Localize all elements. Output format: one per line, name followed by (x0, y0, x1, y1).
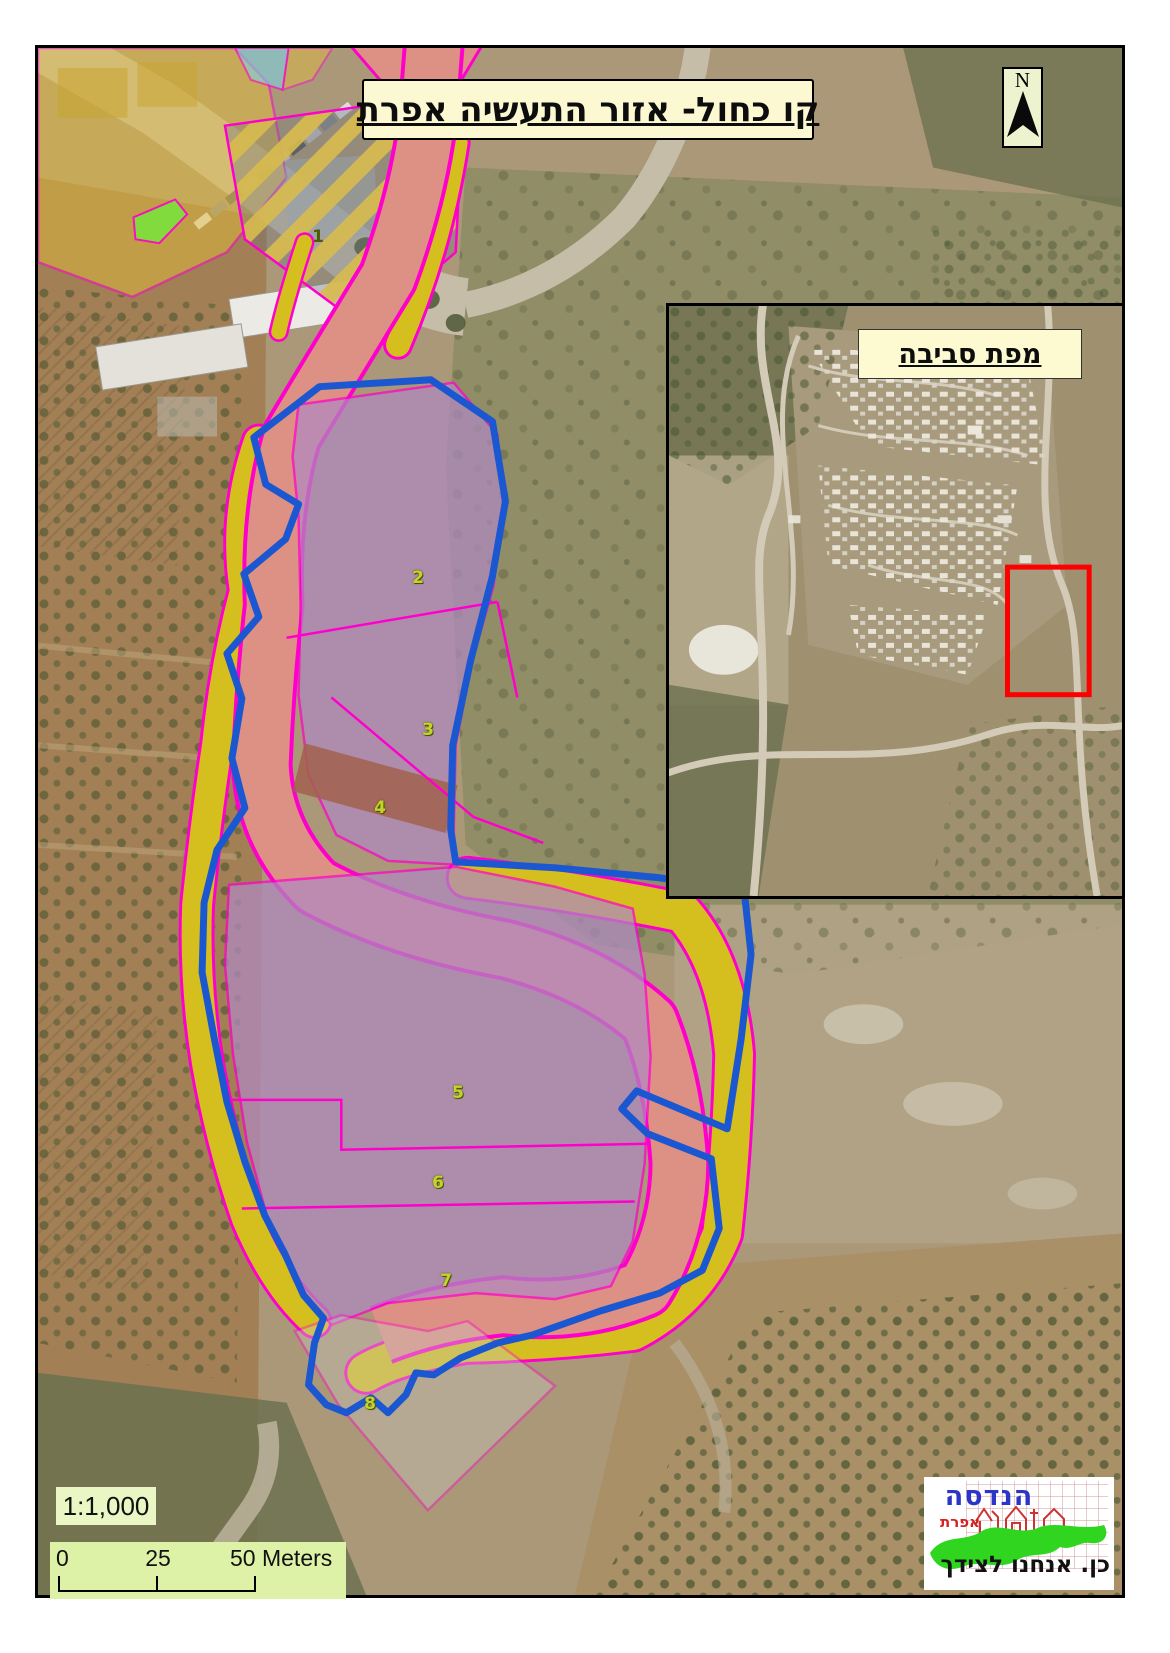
scalebar-tick-50: 50 Meters (230, 1545, 332, 1572)
parcel-label-3: 3 (422, 720, 434, 740)
parcel-label-8: 8 (364, 1394, 376, 1414)
north-arrow-box: N (1002, 67, 1043, 148)
parcel-label-4: 4 (374, 798, 386, 818)
inset-aerial (669, 306, 1122, 896)
north-label: N (1004, 69, 1041, 91)
parcel-label-2: 2 (412, 568, 424, 588)
parcel-label-6: 6 (432, 1173, 444, 1193)
scalebar-tick-25: 25 (138, 1545, 178, 1572)
inset-map (666, 303, 1125, 899)
parcel-label-7: 7 (440, 1271, 452, 1291)
map-title-box: קו כחול- אזור התעשיה אפרת (362, 79, 814, 140)
logo-box: הנדסה אפרת כן. אנחנו לצידך (924, 1477, 1114, 1590)
logo-name: הנדסה (929, 1481, 1049, 1512)
scale-ratio-box: 1:1,000 (56, 1487, 156, 1525)
inset-title: מפת סביבה (899, 339, 1042, 370)
logo-tagline: כן. אנחנו לצידך (941, 1552, 1110, 1578)
north-arrow-icon (1005, 91, 1041, 143)
map-sheet: מפת סביבה קו כחול- אזור התעשיה אפרת N 1 … (0, 0, 1170, 1653)
inset-title-box: מפת סביבה (858, 329, 1082, 379)
map-title: קו כחול- אזור התעשיה אפרת (357, 90, 820, 130)
scalebar-tick-0: 0 (56, 1545, 69, 1572)
scalebar: 0 25 50 Meters (50, 1542, 346, 1599)
parcel-label-1: 1 (312, 227, 324, 247)
scalebar-line (58, 1576, 256, 1592)
parcel-label-5: 5 (452, 1083, 464, 1103)
scale-ratio: 1:1,000 (63, 1491, 150, 1522)
